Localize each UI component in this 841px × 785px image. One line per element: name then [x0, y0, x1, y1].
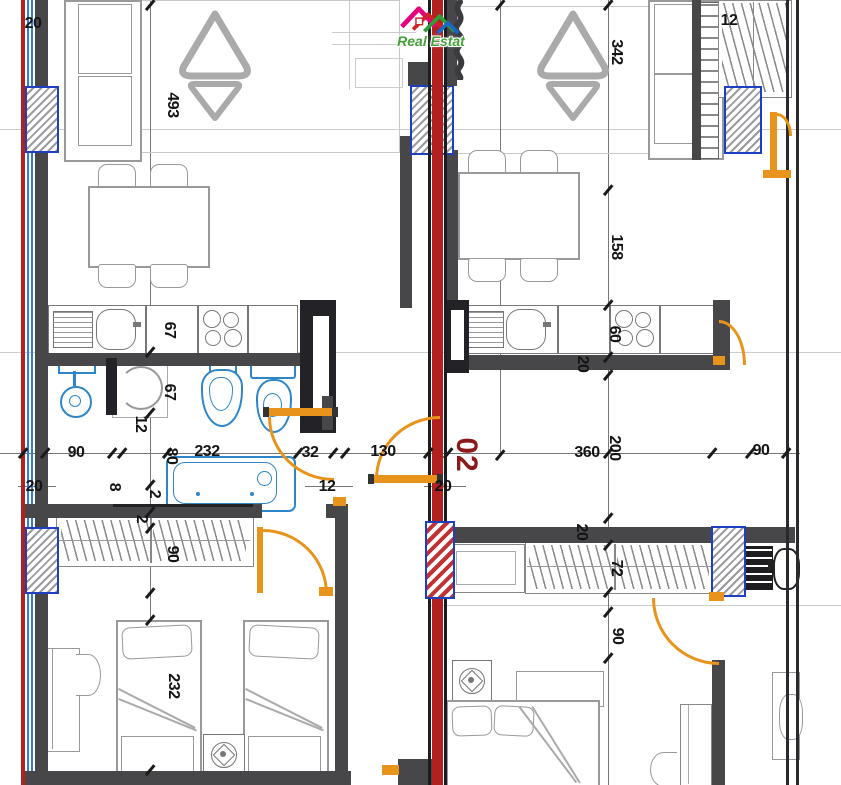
dimension-label: 232 [165, 673, 181, 698]
dimension-label: 20 [435, 479, 452, 495]
dimension-label: 67 [161, 384, 177, 401]
dimension-label: 158 [608, 234, 624, 259]
dimension-label: 493 [164, 92, 180, 117]
dimension-label: 90 [68, 445, 85, 461]
dimension-label: 20 [25, 16, 42, 32]
dimension-label: 20 [573, 524, 589, 541]
dimension-label: 67 [161, 322, 177, 339]
dimension-label: 20 [574, 356, 590, 373]
watermark-text: Real Estat [388, 33, 474, 49]
dimension-label: 360 [574, 445, 599, 461]
dimension-label: 8 [106, 483, 122, 491]
dimension-label: 20 [26, 479, 43, 495]
dimension-label: 12 [319, 479, 336, 495]
dimension-label: 32 [302, 445, 319, 461]
dimension-label: 90 [164, 546, 180, 563]
dimension-label: 2 [146, 490, 162, 498]
dimension-label: 90 [753, 443, 770, 459]
dimension-label: 12 [132, 416, 148, 433]
dimension-label: 200 [606, 435, 622, 460]
dimension-label: 90 [609, 628, 625, 645]
dimension-label: 12 [721, 13, 738, 29]
dimension-label: 130 [370, 444, 395, 460]
floor-plan: 2049334212158676760201222908208023232121… [0, 0, 841, 785]
dimension-label: 80 [163, 448, 179, 465]
dimension-label: 342 [608, 39, 624, 64]
dimension-layer: 2049334212158676760201222908208023232121… [0, 0, 841, 785]
dimension-label: 72 [608, 560, 624, 577]
logo-house-icon [398, 4, 464, 36]
dimension-label: 60 [606, 326, 622, 343]
watermark-logo: Real Estat [388, 4, 474, 54]
dimension-label: 2 [133, 515, 149, 523]
dimension-label: 232 [194, 444, 219, 460]
unit-number-label: 02 [449, 437, 483, 472]
